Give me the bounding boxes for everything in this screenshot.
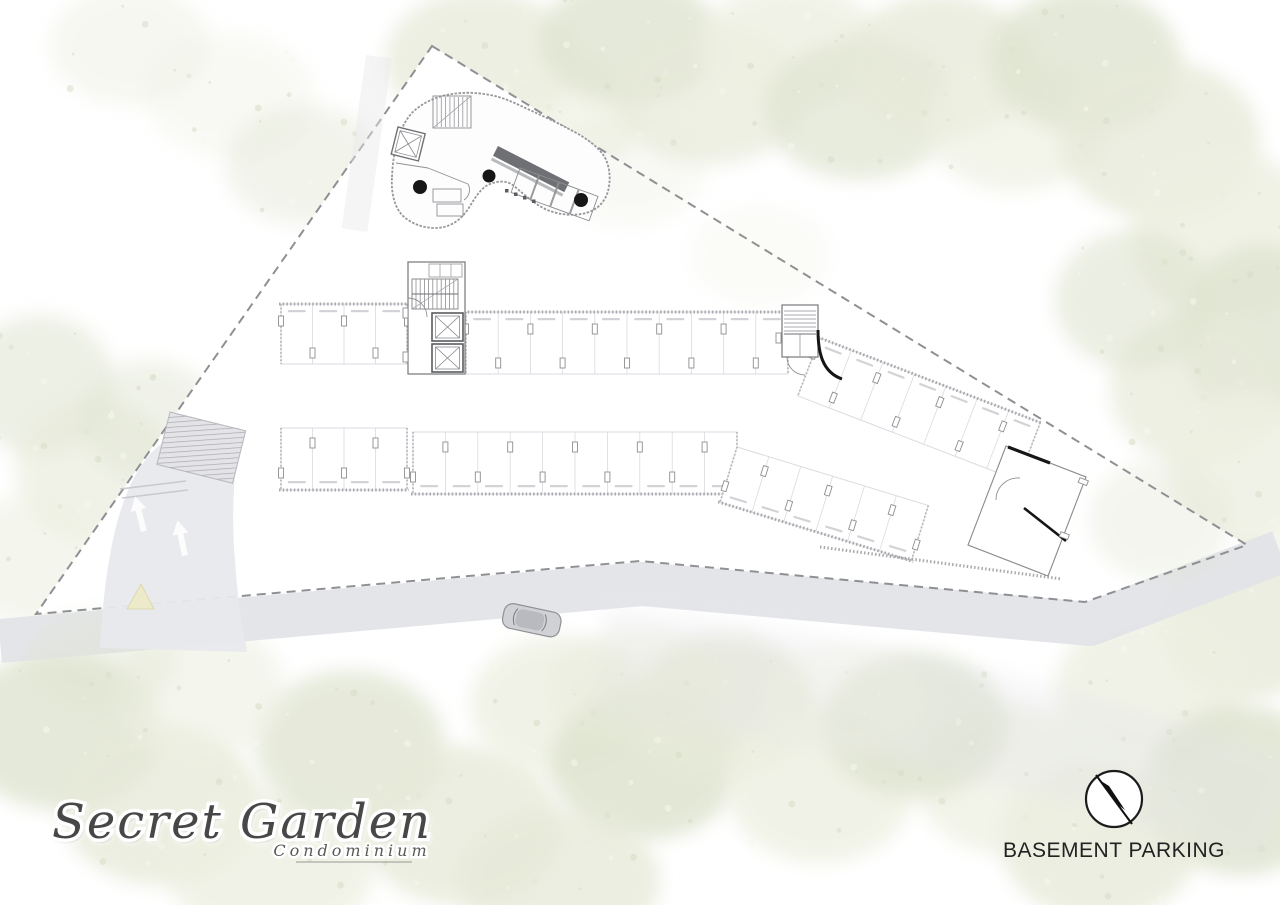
stall-label-tick (288, 310, 306, 312)
tree-blob (760, 645, 930, 755)
column-marker (508, 442, 513, 452)
column-marker (689, 358, 694, 368)
foliage-speckle (507, 886, 510, 889)
foliage-speckle (493, 699, 498, 704)
foliage-speckle (1072, 826, 1077, 831)
foliage-speckle (719, 88, 726, 95)
tree-blob (690, 205, 830, 305)
foliage-speckle (601, 47, 606, 52)
foliage-speckle (946, 118, 949, 121)
foliage-speckle (27, 353, 30, 356)
foliage-speckle (120, 453, 127, 460)
foliage-speckle (533, 720, 540, 727)
foliage-speckle (1232, 279, 1237, 284)
foliage-speckle (1205, 92, 1208, 95)
foliage-speckle (122, 479, 125, 482)
foliage-speckle (192, 127, 197, 132)
foliage-speckle (143, 728, 148, 733)
column-dot (413, 180, 427, 194)
foliage-speckle (886, 114, 891, 119)
foliage-speckle (688, 819, 693, 824)
foliage-speckle (886, 16, 889, 19)
foliage-speckle (255, 105, 262, 112)
foliage-speckle (1158, 345, 1165, 352)
foliage-speckle (938, 798, 945, 805)
foliage-speckle (898, 770, 905, 777)
foliage-speckle (630, 854, 637, 861)
foliage-speckle (1165, 631, 1168, 634)
column-marker (405, 468, 410, 478)
column-marker (411, 472, 416, 482)
foliage-speckle (99, 858, 106, 865)
foliage-speckle (1154, 190, 1161, 197)
column-marker (279, 316, 284, 326)
stall-label-tick (699, 318, 717, 320)
foliage-speckle (1225, 312, 1228, 315)
foliage-speckle (84, 501, 91, 508)
foliage-speckle (121, 5, 124, 8)
foliage-speckle (517, 773, 520, 776)
foliage-speckle (383, 861, 388, 866)
foliage-speckle (335, 688, 338, 691)
foliage-speckle (1190, 298, 1197, 305)
foliage-speckle (1247, 271, 1254, 278)
foliage-speckle (244, 136, 247, 139)
foliage-speckle (752, 121, 757, 126)
foliage-speckle (657, 94, 660, 97)
foliage-speckle (310, 759, 315, 764)
foliage-speckle (837, 828, 842, 833)
foliage-speckle (531, 749, 536, 754)
foliage-speckle (72, 53, 75, 56)
foliage-speckle (883, 835, 888, 840)
foliage-speckle (1016, 69, 1021, 74)
foliage-speckle (1255, 491, 1262, 498)
stall-label-tick (731, 318, 749, 320)
north-arrow-icon (1086, 771, 1142, 827)
foliage-speckle (1044, 879, 1051, 886)
foliage-speckle (1234, 85, 1237, 88)
foliage-speckle (41, 442, 48, 449)
foliage-speckle (1102, 60, 1109, 67)
foliage-speckle (370, 700, 375, 705)
column-marker (403, 308, 408, 318)
foliage-speckle (1130, 392, 1133, 395)
stall-label-tick (505, 318, 523, 320)
column-marker (310, 348, 315, 358)
column-marker (670, 472, 675, 482)
foliage-speckle (176, 686, 181, 691)
foliage-speckle (1180, 223, 1185, 228)
foliage-speckle (1088, 680, 1093, 685)
column-dot (574, 193, 588, 207)
foliage-speckle (974, 76, 977, 79)
foliage-speckle (284, 50, 289, 55)
stall-label-tick (666, 318, 684, 320)
foliage-speckle (106, 755, 109, 758)
foliage-speckle (609, 856, 614, 861)
foliage-speckle (1153, 41, 1156, 44)
foliage-speckle (306, 156, 309, 159)
foliage-speckle (804, 12, 811, 19)
tree-blob (550, 630, 730, 746)
foliage-speckle (751, 750, 754, 753)
foliage-speckle (446, 798, 453, 805)
foliage-speckle (6, 557, 11, 562)
foliage-speckle (917, 776, 922, 781)
lobby-elevator (391, 127, 425, 161)
stall-label-tick (538, 318, 556, 320)
column-marker (605, 472, 610, 482)
foliage-speckle (1151, 311, 1156, 316)
foliage-speckle (1115, 5, 1118, 8)
foliage-speckle (286, 713, 289, 716)
stall-label-tick (319, 481, 337, 483)
foliage-speckle (1084, 106, 1089, 111)
elevator-shaft (432, 313, 463, 341)
foliage-speckle (524, 11, 527, 14)
foliage-speckle (337, 882, 344, 889)
foliage-speckle (142, 21, 149, 28)
foliage-speckle (788, 143, 795, 150)
foliage-speckle (579, 887, 582, 890)
foliage-speckle (67, 85, 74, 92)
column-marker (475, 472, 480, 482)
foliage-speckle (1179, 249, 1186, 256)
stall-label-tick (570, 318, 588, 320)
foliage-speckle (95, 456, 102, 463)
foliage-speckle (1207, 142, 1210, 145)
foliage-speckle (949, 164, 954, 169)
foliage-speckle (33, 446, 38, 451)
foliage-speckle (1105, 679, 1108, 682)
foliage-speckle (604, 83, 611, 90)
foliage-speckle (1213, 651, 1216, 654)
foliage-speckle (675, 752, 682, 759)
foliage-speckle (404, 740, 411, 747)
foliage-speckle (629, 780, 634, 785)
foliage-speckle (1238, 460, 1241, 463)
foliage-speckle (1129, 439, 1136, 446)
stall-label-tick (382, 481, 400, 483)
foliage-speckle (260, 208, 265, 213)
stall-label-tick (382, 310, 400, 312)
parking-row-lower-right (411, 432, 740, 494)
column-marker (373, 348, 378, 358)
foliage-speckle (233, 775, 238, 780)
column-dot (483, 170, 496, 183)
foliage-speckle (1276, 266, 1279, 269)
foliage-speckle (108, 413, 115, 420)
column-marker (373, 438, 378, 448)
foliage-speckle (43, 726, 50, 733)
foliage-speckle (394, 729, 397, 732)
stall-label-tick (647, 485, 665, 487)
foliage-speckle (1151, 171, 1156, 176)
stall-label-tick (582, 485, 600, 487)
foliage-speckle (514, 69, 519, 74)
column-marker (403, 352, 408, 362)
foliage-speckle (1021, 111, 1026, 116)
foliage-speckle (1190, 430, 1193, 433)
column-marker (592, 324, 597, 334)
tree-blob (1090, 460, 1230, 580)
foliage-speckle (18, 669, 21, 672)
foliage-speckle (1100, 874, 1105, 879)
foliage-speckle (835, 84, 838, 87)
foliage-speckle (947, 833, 954, 840)
foliage-speckle (460, 774, 463, 777)
foliage-speckle (563, 41, 570, 48)
foliage-speckle (174, 25, 179, 30)
stall-label-tick (550, 485, 568, 487)
foliage-speckle (74, 332, 77, 335)
stall-label-tick (602, 318, 620, 320)
foliage-speckle (731, 12, 734, 15)
column-marker (573, 442, 578, 452)
foliage-speckle (1103, 117, 1110, 124)
foliage-speckle (95, 373, 98, 376)
foliage-speckle (149, 374, 156, 381)
foliage-speckle (840, 34, 845, 39)
foliage-speckle (481, 42, 488, 49)
stair-elevator-core (403, 262, 465, 374)
foliage-speckle (138, 735, 143, 740)
stall-label-tick (679, 485, 697, 487)
foliage-speckle (216, 778, 223, 785)
tree-blob (1055, 230, 1215, 370)
column-marker (342, 468, 347, 478)
foliage-speckle (850, 764, 857, 771)
foliage-speckle (77, 510, 80, 513)
foliage-speckle (688, 17, 691, 20)
foliage-speckle (200, 138, 207, 145)
column-marker (776, 333, 781, 343)
foliage-speckle (493, 664, 500, 671)
stall-label-tick (485, 485, 503, 487)
foliage-speckle (228, 659, 231, 662)
foliage-speckle (203, 853, 206, 856)
parking-row-lower-left (279, 428, 410, 490)
stall-label-tick (288, 481, 306, 483)
foliage-speckle (748, 840, 755, 847)
foliage-speckle (169, 48, 172, 51)
foliage-speckle (1081, 246, 1084, 249)
foliage-speckle (41, 378, 48, 385)
column-marker (721, 324, 726, 334)
foliage-speckle (287, 92, 292, 97)
foliage-speckle (1042, 9, 1049, 16)
foliage-speckle (559, 110, 562, 113)
foliage-speckle (10, 605, 17, 612)
foliage-speckle (255, 703, 262, 710)
foliage-speckle (955, 164, 960, 169)
column-marker (702, 442, 707, 452)
foliage-speckle (502, 653, 507, 658)
stall-label-tick (634, 318, 652, 320)
column-marker (496, 358, 501, 368)
foliage-speckle (43, 532, 46, 535)
foliage-speckle (654, 76, 661, 83)
column-marker (540, 472, 545, 482)
foliage-speckle (1100, 349, 1105, 354)
site-plan-canvas: BASEMENT PARKING Secret Garden Secret Ga… (0, 0, 1280, 905)
foliage-speckle (828, 156, 835, 163)
foliage-speckle (1106, 335, 1113, 342)
foliage-speckle (648, 750, 651, 753)
foliage-speckle (868, 24, 871, 27)
foliage-speckle (1196, 411, 1199, 414)
foliage-speckle (515, 835, 518, 838)
foliage-speckle (464, 20, 467, 23)
column-marker (625, 358, 630, 368)
foliage-speckle (788, 801, 795, 808)
column-marker (637, 442, 642, 452)
foliage-speckle (1054, 33, 1057, 36)
foliage-speckle (1105, 893, 1112, 900)
foliage-speckle (1200, 344, 1203, 347)
logo-script-subtitle: Condominium (273, 841, 430, 860)
stall-label-tick (517, 485, 535, 487)
foliage-speckle (415, 880, 420, 885)
foliage-speckle (665, 805, 672, 812)
foliage-speckle (878, 159, 883, 164)
foliage-speckle (9, 345, 14, 350)
foliage-speckle (747, 63, 754, 70)
foliage-speckle (1182, 710, 1189, 717)
foliage-speckle (792, 56, 795, 59)
foliage-speckle (1102, 172, 1107, 177)
foliage-speckle (835, 39, 838, 42)
foliage-speckle (146, 861, 151, 866)
stall-label-tick (319, 310, 337, 312)
column-marker (560, 358, 565, 368)
foliage-speckle (440, 28, 445, 33)
parking-row-upper-left (279, 304, 410, 364)
column-marker (528, 324, 533, 334)
foliage-speckle (1144, 427, 1151, 434)
foliage-speckle (340, 119, 347, 126)
stall-label-tick (763, 318, 781, 320)
basement-parking-label: BASEMENT PARKING (1003, 839, 1225, 862)
foliage-speckle (647, 21, 650, 24)
foliage-speckle (208, 81, 211, 84)
foliage-speckle (1188, 256, 1193, 261)
foliage-speckle (259, 120, 262, 123)
foliage-speckle (1060, 14, 1065, 19)
column-marker (657, 324, 662, 334)
stall-label-tick (615, 485, 633, 487)
foliage-speckle (1121, 646, 1128, 653)
foliage-speckle (75, 546, 78, 549)
column-marker (279, 468, 284, 478)
stall-label-tick (453, 485, 471, 487)
foliage-speckle (1194, 368, 1201, 375)
foliage-speckle (1142, 154, 1145, 157)
foliage-speckle (942, 65, 945, 68)
foliage-speckle (1004, 114, 1009, 119)
basement-parking-plan-sheet: BASEMENT PARKING Secret Garden Secret Ga… (0, 0, 1280, 905)
stall-label-tick (351, 481, 369, 483)
foliage-speckle (288, 198, 295, 205)
foliage-speckle (153, 375, 156, 378)
logo: Secret Garden Secret Garden Condominium (52, 794, 434, 862)
foliage-speckle (902, 78, 905, 81)
foliage-speckle (136, 386, 141, 391)
foliage-speckle (289, 56, 296, 63)
foliage-speckle (351, 690, 358, 697)
foliage-speckle (1270, 519, 1275, 524)
foliage-speckle (174, 69, 177, 72)
foliage-speckle (693, 64, 698, 69)
column-marker (443, 442, 448, 452)
foliage-speckle (797, 90, 800, 93)
foliage-speckle (1232, 359, 1237, 364)
stall-label-tick (473, 318, 491, 320)
foliage-speckle (1078, 272, 1081, 275)
elevator-shaft (432, 344, 463, 372)
foliage-speckle (253, 739, 260, 746)
foliage-speckle (1140, 630, 1145, 635)
parking-row-upper-right (464, 312, 791, 374)
foliage-speckle (78, 7, 81, 10)
foliage-speckle (308, 180, 313, 185)
foliage-speckle (91, 70, 98, 77)
foliage-speckle (1258, 192, 1261, 195)
column-marker (310, 438, 315, 448)
foliage-speckle (1249, 588, 1254, 593)
column-marker (342, 316, 347, 326)
foliage-speckle (571, 759, 578, 766)
foliage-speckle (84, 752, 87, 755)
foliage-speckle (1157, 896, 1162, 901)
foliage-speckle (484, 834, 487, 837)
stall-label-tick (420, 485, 438, 487)
foliage-speckle (93, 476, 96, 479)
stall-label-tick (351, 310, 369, 312)
column-marker (753, 358, 758, 368)
foliage-speckle (1123, 283, 1126, 286)
